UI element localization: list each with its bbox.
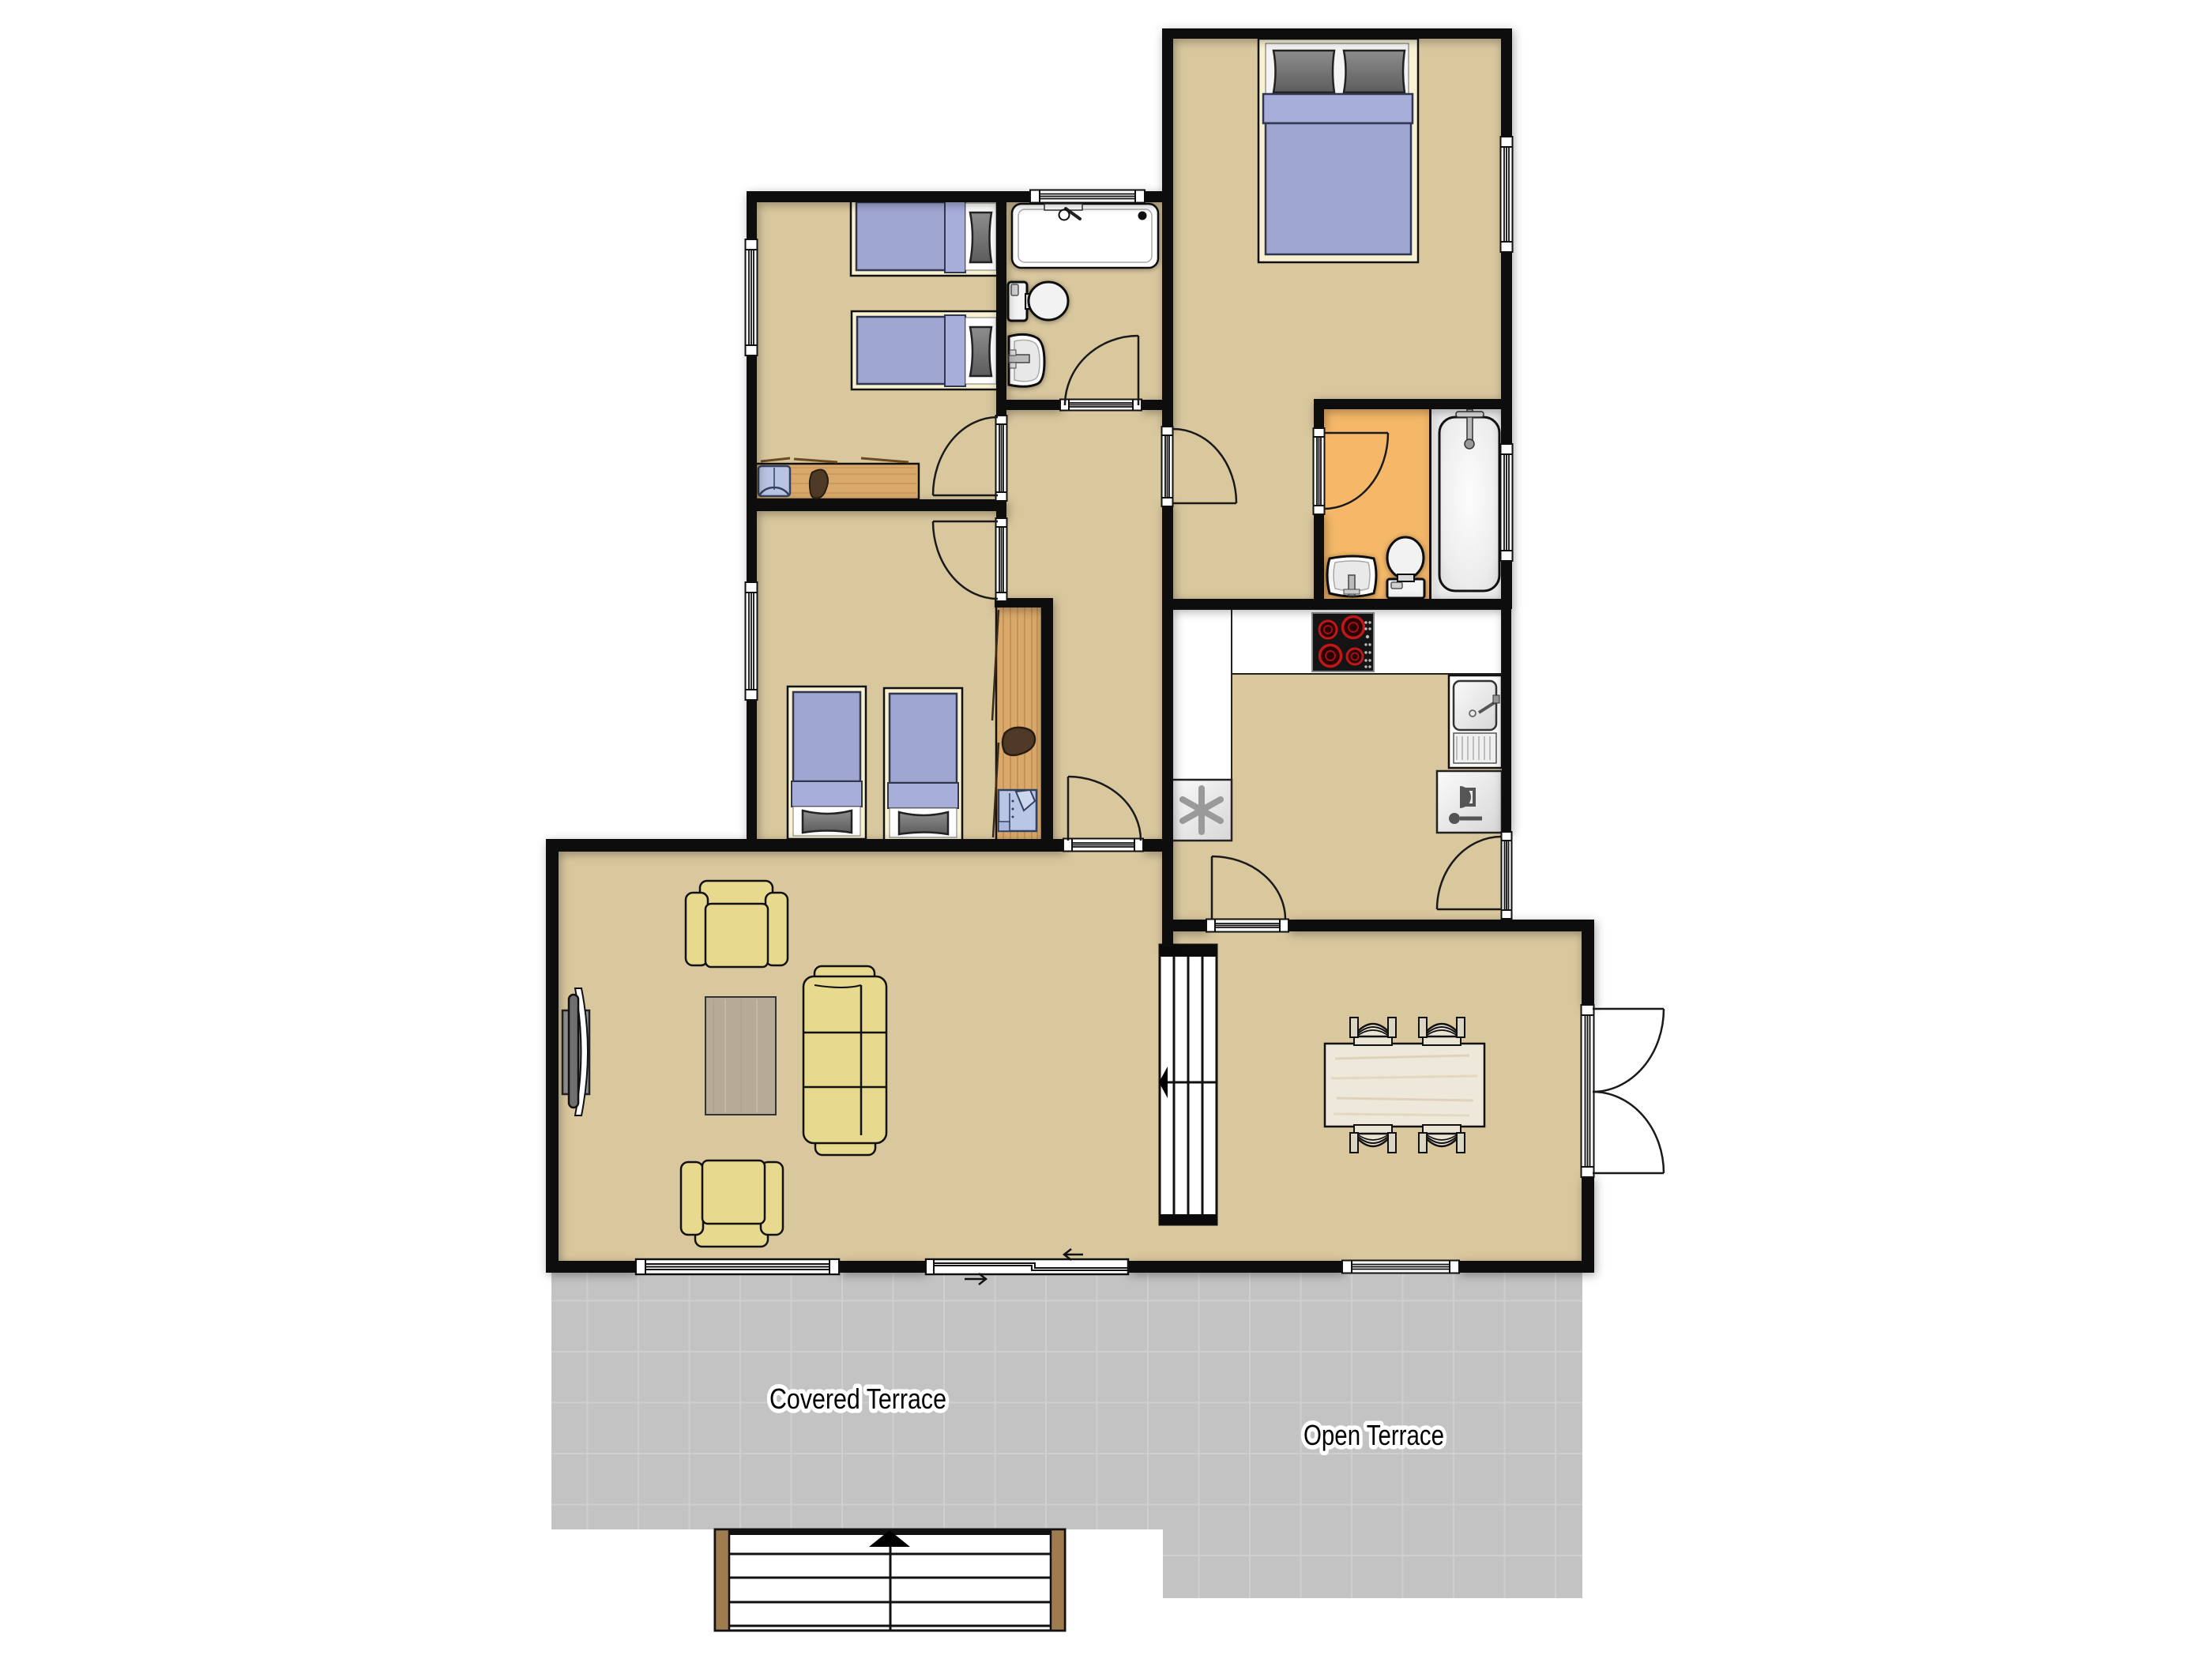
svg-text:Open Terrace: Open Terrace	[1303, 1419, 1444, 1451]
svg-text:Covered Terrace: Covered Terrace	[769, 1382, 946, 1415]
